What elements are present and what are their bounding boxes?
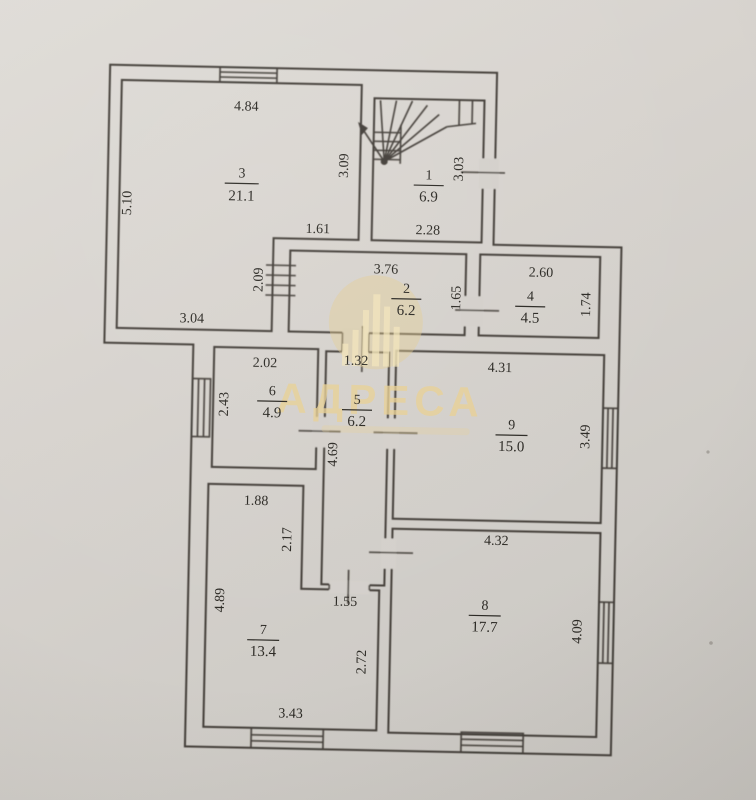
door-tick-room1-right [461,172,505,173]
dim-room5-door-bottom: 1.55 [333,594,358,610]
room5-number: 5 [354,393,361,408]
room7-area: 13.4 [250,644,277,661]
dim-room3-right: 3.09 [337,153,353,178]
room7-number: 7 [260,623,267,638]
dim-room1-bottom: 2.28 [415,223,440,239]
opening-room1-right [479,158,500,188]
dust-speck [709,641,713,645]
room4-number: 4 [527,289,534,304]
dim-room8-top: 4.32 [484,534,509,550]
dim-room3-bottom: 3.04 [179,311,204,327]
room9-fraction-line [496,435,528,436]
opening-corridor-room8 [381,538,397,568]
dim-room4-top: 2.60 [528,266,553,282]
floor-plan: АДРЕСА 3 21.1 4.84 5.10 3.09 1.61 2.09 3… [96,65,625,756]
window-bottom-room7 [251,728,323,750]
room9-number: 9 [508,418,515,433]
dim-room3-notch-width: 1.61 [305,222,330,238]
room6-number: 6 [269,384,276,399]
door-tick-corridor-room8 [369,552,413,553]
dim-room5-left: 4.69 [326,442,342,467]
dim-room7-notch: 2.17 [280,527,296,552]
room8-fraction-line [469,615,501,616]
dim-room4-right: 1.74 [579,292,595,317]
dim-room2-top: 3.76 [374,262,399,278]
room2-fraction-line [391,299,421,300]
room-3-walls [117,80,362,333]
room2-area: 6.2 [397,303,416,319]
room6-area: 4.9 [262,405,281,421]
dim-room7-right: 2.72 [354,650,370,675]
room3-fraction-line [225,183,259,184]
room4-area: 4.5 [520,310,539,326]
window-top-room3 [220,67,277,83]
dim-room6-left: 2.43 [217,392,233,417]
room4-fraction-line [515,306,545,307]
room1-number: 1 [425,168,432,183]
dim-room5-top: 1.32 [344,354,369,370]
window-right-room8 [598,602,614,663]
dim-room8-right: 4.09 [570,619,586,644]
opening-corridor-room7 [329,580,369,594]
dim-room6-top: 2.02 [253,356,278,372]
room9-area: 15.0 [498,439,525,456]
room5-area: 6.2 [347,414,366,430]
stair-treads-upper [447,100,477,128]
room2-number: 2 [403,282,410,297]
room7-fraction-line [247,640,279,641]
watermark-brand: АДРЕСА [276,374,484,425]
dim-room3-left: 5.10 [120,191,136,216]
dust-speck [706,450,709,453]
room8-number: 8 [481,599,488,614]
room1-fraction-line [414,185,444,186]
dim-room7-top: 1.88 [244,494,269,510]
room1-area: 6.9 [419,189,438,205]
room3-number: 3 [238,166,245,181]
room6-fraction-line [257,401,287,402]
stair-winder-fan [379,100,447,162]
dim-room1-right: 3.03 [452,157,468,182]
dim-room9-top: 4.31 [487,361,512,377]
dim-room3-notch-height: 2.09 [251,267,267,292]
room8-area: 17.7 [471,619,498,636]
dim-room7-left: 4.89 [213,588,229,613]
window-left-room6 [191,378,210,436]
dim-room3-top: 4.84 [234,99,259,115]
room5-fraction-line [342,410,372,411]
floor-plan-drawing: АДРЕСА 3 21.1 4.84 5.10 3.09 1.61 2.09 3… [0,0,756,800]
window-right-room9 [602,408,618,468]
room3-area: 21.1 [228,188,255,205]
dim-room9-right: 3.49 [578,424,594,449]
dim-room4-door: 1.65 [449,286,465,311]
floor-plan-photo: АДРЕСА 3 21.1 4.84 5.10 3.09 1.61 2.09 3… [0,0,756,800]
stair-arrow-head [358,122,368,135]
dim-room7-bottom: 3.43 [278,706,303,722]
hatch-room3-room2 [265,265,296,296]
